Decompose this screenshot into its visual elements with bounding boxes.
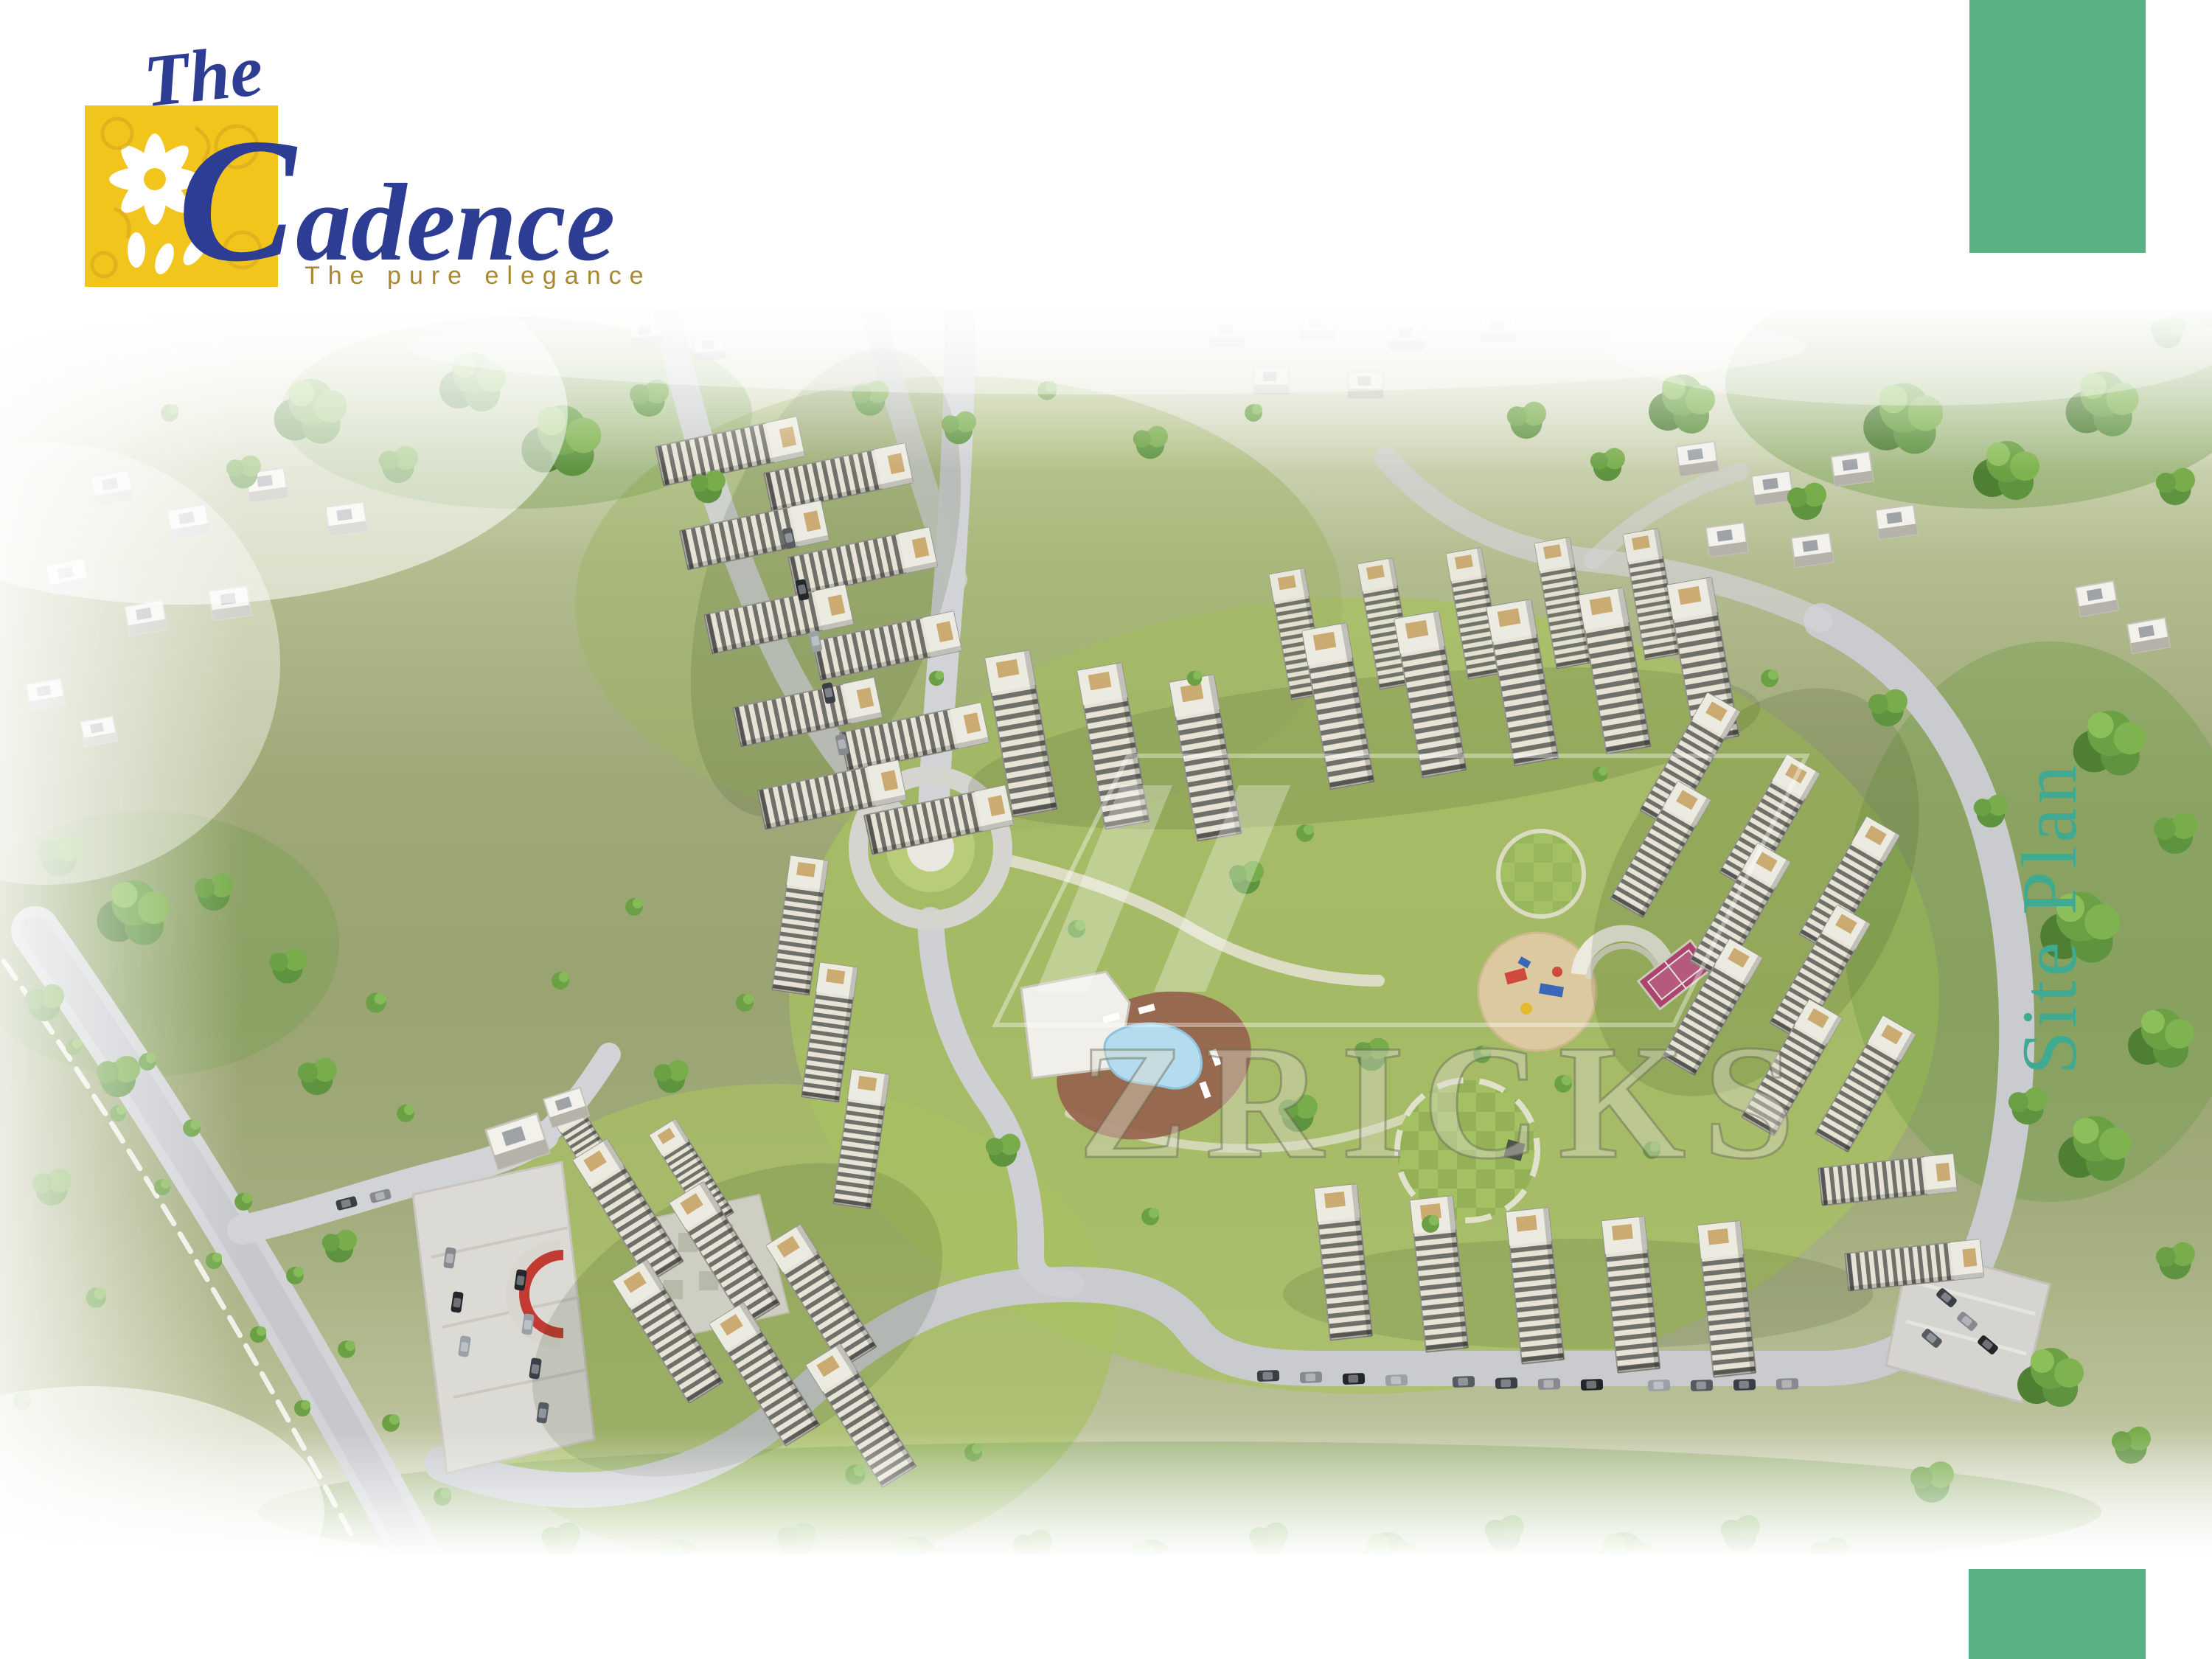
teal-accent-block-bottom — [1969, 1569, 2146, 1659]
zricks-watermark: ZRICKS — [1025, 1003, 1865, 1202]
teal-accent-block-top — [1969, 0, 2146, 253]
site-plan-label: Site Plan — [1998, 697, 2101, 1139]
cadence-logo: The Cadence The pure elegance — [85, 41, 660, 299]
brochure-page: ZRICKS Site Plan — [0, 0, 2212, 1659]
logo-tagline: The pure elegance — [305, 262, 652, 291]
